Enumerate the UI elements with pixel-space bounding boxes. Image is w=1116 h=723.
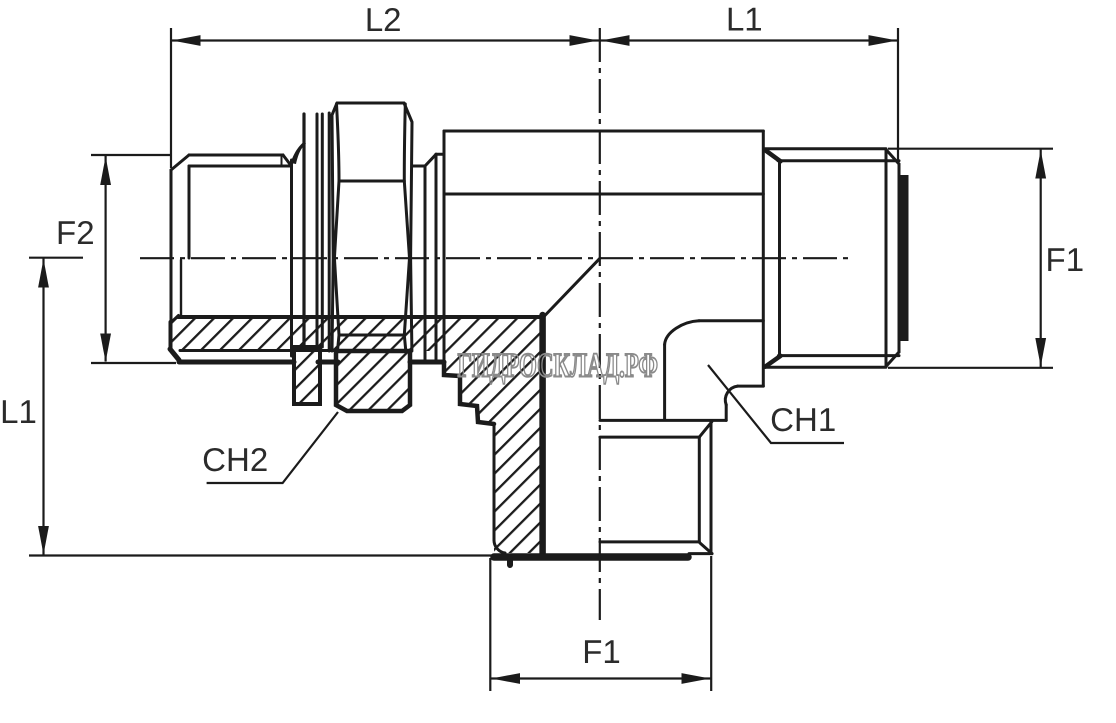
- svg-text:ГИДРОСКЛАД.РФ: ГИДРОСКЛАД.РФ: [457, 347, 657, 385]
- svg-text:F1: F1: [1046, 241, 1085, 278]
- svg-text:CH2: CH2: [202, 441, 268, 478]
- svg-text:F2: F2: [56, 214, 95, 251]
- svg-text:L1: L1: [0, 393, 37, 430]
- svg-text:L2: L2: [365, 1, 402, 38]
- svg-text:F1: F1: [582, 633, 621, 670]
- svg-text:CH1: CH1: [770, 401, 836, 438]
- svg-text:L1: L1: [726, 1, 763, 38]
